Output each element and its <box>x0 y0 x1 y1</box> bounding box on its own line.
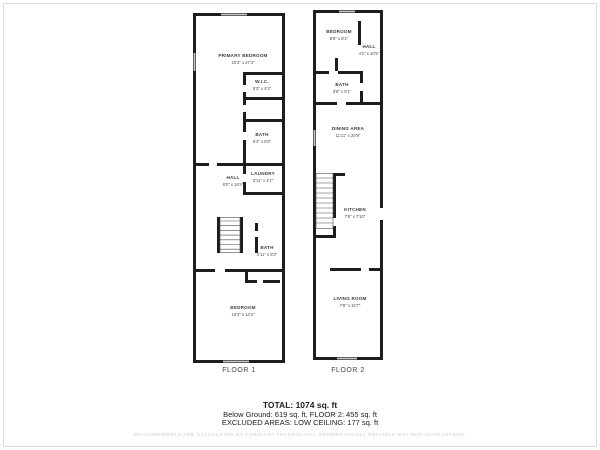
room-label-laundry: LAUNDRY <box>251 171 275 176</box>
floor1-windows <box>194 14 249 363</box>
excluded-area-text: EXCLUDED AREAS: LOW CEILING: 177 sq. ft <box>0 419 600 428</box>
room-label-hall2: HALL <box>362 44 375 49</box>
room-dims-hall2: 4'1" x 10'5" <box>359 51 380 56</box>
room-dims-living: 7'8" x 15'7" <box>340 303 361 308</box>
room-label-bath-upper: BATH <box>255 132 269 137</box>
area-summary: TOTAL: 1074 sq. ft Below Ground: 619 sq.… <box>0 401 600 428</box>
room-dims-dining: 11'11" x 20'9" <box>336 133 361 138</box>
measurement-disclaimer: MEASUREMENTS ARE CALCULATED BY CUBICASA … <box>0 433 600 438</box>
room-label-dining: DINING AREA <box>332 126 365 131</box>
room-dims-primary-bedroom: 10'3" x 27'3" <box>232 60 255 65</box>
floor2-label: FLOOR 2 <box>313 367 383 374</box>
floor1-label: FLOOR 1 <box>193 367 285 374</box>
room-label-hall: HALL <box>226 175 239 180</box>
room-dims-kitchen: 7'8" x 7'10" <box>345 214 366 219</box>
room-label-wic: W.I.C. <box>255 79 269 84</box>
room-dims-bedroom2: 8'8" x 8'1" <box>330 36 349 41</box>
room-label-living: LIVING ROOM <box>333 296 366 301</box>
room-label-bath-lower: BATH <box>260 245 274 250</box>
floor1-room-labels: PRIMARY BEDROOM 10'3" x 27'3" W.I.C. 5'3… <box>218 53 277 317</box>
floor1-walls <box>193 13 285 363</box>
room-dims-bath2: 8'8" x 5'1" <box>333 89 352 94</box>
room-label-bedroom2: BEDROOM <box>326 29 351 34</box>
room-dims-laundry: 2'11" x 4'1" <box>253 178 274 183</box>
floorplan-page: PRIMARY BEDROOM 10'3" x 27'3" W.I.C. 5'3… <box>0 0 600 450</box>
floor2-room-labels: BEDROOM 8'8" x 8'1" HALL 4'1" x 10'5" BA… <box>326 29 380 308</box>
floor1-stairs <box>220 218 240 253</box>
room-label-bath2: BATH <box>335 82 349 87</box>
room-dims-wic: 5'3" x 4'2" <box>253 86 272 91</box>
room-dims-bath-upper: 5'3" x 8'2" <box>253 139 272 144</box>
room-label-kitchen: KITCHEN <box>344 207 366 212</box>
room-dims-hall: 6'0" x 18'4" <box>223 182 244 187</box>
room-dims-bath-lower: 2'11" x 9'2" <box>257 252 278 257</box>
floor1-plan: PRIMARY BEDROOM 10'3" x 27'3" W.I.C. 5'3… <box>193 13 285 363</box>
room-label-primary-bedroom: PRIMARY BEDROOM <box>218 53 267 58</box>
floor2-plan: BEDROOM 8'8" x 8'1" HALL 4'1" x 10'5" BA… <box>313 10 383 360</box>
room-dims-bedroom1: 10'3" x 14'4" <box>232 312 255 317</box>
page-border <box>3 3 597 447</box>
room-label-bedroom1: BEDROOM <box>230 305 255 310</box>
floor2-stairs <box>316 174 333 229</box>
